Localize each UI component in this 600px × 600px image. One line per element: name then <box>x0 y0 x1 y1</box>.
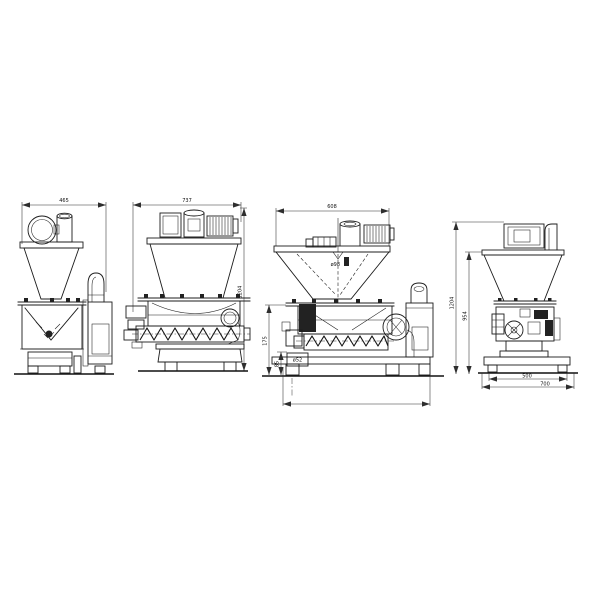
top-units-v4 <box>504 224 557 250</box>
dim-label-v4-height-inner: 954 <box>463 311 469 321</box>
base-v4 <box>484 341 570 372</box>
hopper-v1 <box>20 242 83 299</box>
feeder-v4 <box>492 298 560 341</box>
top-units-v2 <box>160 210 238 237</box>
blower-v2 <box>221 309 239 327</box>
control-panel-v1 <box>83 273 112 373</box>
hopper-v3 <box>274 246 390 305</box>
hopper-v4 <box>482 250 564 301</box>
right-panel-v3 <box>406 283 433 357</box>
view-2-front: 737 1204 <box>124 198 250 371</box>
view-4-side: 1204 954 <box>450 222 579 389</box>
technical-drawing: 465 <box>0 0 600 600</box>
pedestal-v2 <box>156 344 244 371</box>
drawing-sheet: 465 <box>0 0 600 600</box>
dim-label-v4-height-outer: 1204 <box>450 297 456 310</box>
dim-label-v3-spout-height: 85 <box>275 361 281 367</box>
dim-v1-width: 465 <box>22 198 106 292</box>
dim-label-v3-left-height: 175 <box>263 336 269 346</box>
view-1-side: 465 <box>14 198 114 374</box>
dim-v4-height-inner: 954 <box>463 252 483 374</box>
view-3-front-detail: 608 ø98 <box>262 204 444 406</box>
top-units-v3 <box>306 218 394 259</box>
feeder-v2 <box>124 294 250 348</box>
inlet-callout-v3: ø98 <box>331 257 349 268</box>
dim-label-v4-base-width: 500 <box>522 374 532 380</box>
dim-label-v3-width: 608 <box>327 204 337 210</box>
vacuum-loader <box>28 213 72 244</box>
dim-label-v3-inlet: ø98 <box>331 262 340 268</box>
feeder-box-v1 <box>18 298 86 349</box>
dim-label-v1-width: 465 <box>59 198 69 204</box>
feeder-v3 <box>282 299 414 357</box>
dim-v4-base-width: 500 <box>489 373 567 381</box>
hopper-v2 <box>147 238 241 298</box>
dim-label-v4-base-overall: 700 <box>540 382 550 388</box>
dim-v2-height: 1204 <box>238 208 248 371</box>
dim-v3-spout-height: 85 <box>275 352 288 375</box>
dim-v4-height-outer: 1204 <box>450 222 505 374</box>
dim-label-v3-spout-dia: ø52 <box>293 358 302 364</box>
pedestal-v1 <box>28 352 81 373</box>
dim-label-v2-width: 737 <box>182 198 192 204</box>
dim-v3-bottom <box>283 368 430 406</box>
